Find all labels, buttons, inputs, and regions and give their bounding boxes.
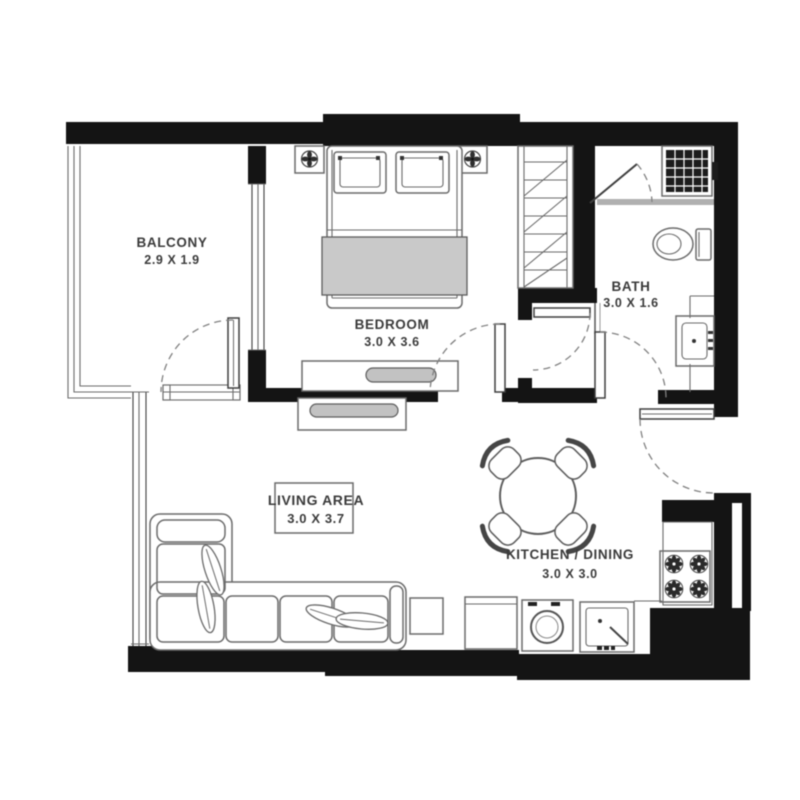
wall-light-icon <box>465 151 481 167</box>
burner-icon <box>690 580 708 598</box>
balcony-railing <box>68 146 131 398</box>
floor-plan: BALCONY 2.9 X 1.9 BEDROOM 3.0 X 3.6 BATH… <box>0 0 800 800</box>
shower <box>662 146 718 196</box>
wall-top-middle <box>323 114 520 146</box>
wall-bottom-middle <box>325 650 519 676</box>
wall-right-lower <box>714 493 732 613</box>
bedroom <box>248 146 590 430</box>
floor-plan-page: BALCONY 2.9 X 1.9 BEDROOM 3.0 X 3.6 BATH… <box>0 0 800 800</box>
wall-right-upper <box>714 146 738 417</box>
dining-chair <box>550 436 598 484</box>
shower-handle <box>712 162 718 180</box>
vanity-sink <box>676 296 714 392</box>
wall-right-outer <box>742 493 751 611</box>
bathroom <box>590 146 718 398</box>
wall-counter-top-bar <box>662 500 714 522</box>
wall-top-left <box>66 122 323 144</box>
wardrobe <box>518 146 573 288</box>
wall-corner-block <box>650 608 750 680</box>
burner-icon <box>665 580 683 598</box>
living-area-dims: 3.0 X 3.7 <box>287 511 344 526</box>
shower-door <box>590 164 652 203</box>
kitchen-sink <box>580 602 634 652</box>
stove <box>660 551 710 602</box>
balcony-label: BALCONY <box>137 235 208 250</box>
living-console <box>298 398 406 430</box>
side-table <box>410 598 443 634</box>
sofa <box>150 514 406 650</box>
dining-chair <box>478 436 526 484</box>
toilet <box>653 228 711 260</box>
bedroom-label: BEDROOM <box>355 317 430 332</box>
bath-label: BATH <box>612 279 651 294</box>
balcony <box>68 146 240 400</box>
living-window <box>131 392 149 646</box>
balcony-door <box>161 318 239 392</box>
wall-top-right <box>520 122 738 146</box>
living-area-label: LIVING AREA <box>268 492 364 508</box>
kitchen-cabinet <box>465 597 517 649</box>
wall-closet-bath-divider <box>573 146 595 303</box>
nightstand-left <box>295 146 324 173</box>
entry-door <box>640 409 714 493</box>
double-bed <box>322 146 467 308</box>
kitchen-dining-label: KITCHEN / DINING <box>506 547 634 562</box>
bedroom-console <box>302 361 458 391</box>
wall-hall-south <box>518 388 597 403</box>
bedroom-hall-door <box>533 308 590 370</box>
bedroom-window <box>248 184 266 350</box>
bedroom-dims: 3.0 X 3.6 <box>364 335 419 349</box>
washing-machine <box>522 600 573 651</box>
wall-bedroom-west-lower <box>248 350 266 402</box>
balcony-dims: 2.9 X 1.9 <box>144 253 199 267</box>
bath-dims: 3.0 X 1.6 <box>603 296 658 310</box>
wall-bath-south-east <box>658 390 716 404</box>
bed-blanket <box>322 237 467 295</box>
wall-bottom-right <box>517 654 657 680</box>
burner-icon <box>690 555 708 573</box>
kitchen-dining-dims: 3.0 X 3.0 <box>542 567 597 581</box>
bath-door <box>595 332 666 398</box>
wall-bedroom-west-upper <box>248 146 266 184</box>
dining-table-set <box>478 436 598 556</box>
wall-hall-west-upper <box>518 303 532 320</box>
burner-icon <box>665 555 683 573</box>
wall-light-icon <box>302 151 318 167</box>
